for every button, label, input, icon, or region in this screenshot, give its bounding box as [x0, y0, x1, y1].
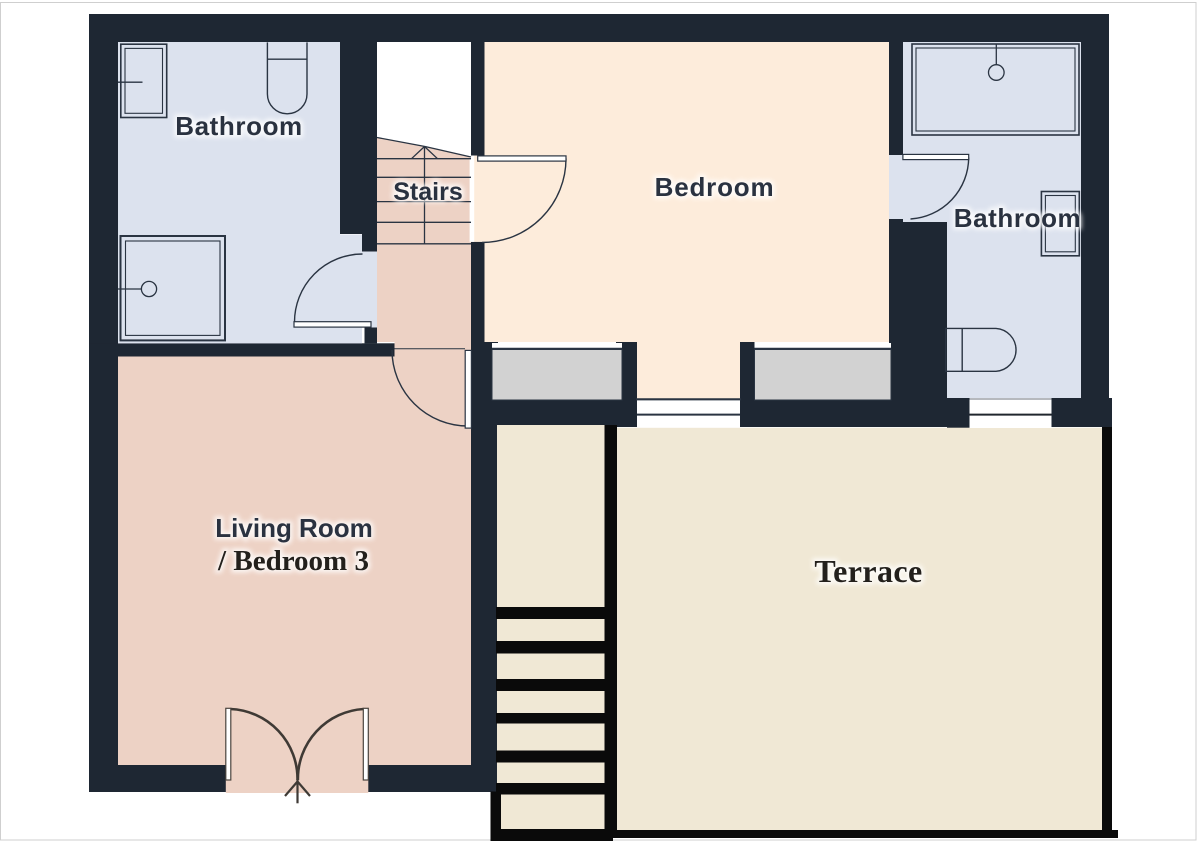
svg-text:Bathroom: Bathroom	[954, 203, 1082, 233]
svg-text:Living Room: Living Room	[215, 513, 372, 543]
svg-text:/ Bedroom 3: / Bedroom 3	[217, 545, 369, 577]
svg-text:Bedroom: Bedroom	[655, 172, 775, 202]
svg-text:Terrace: Terrace	[814, 553, 922, 589]
svg-text:Stairs: Stairs	[393, 178, 462, 206]
svg-text:Bathroom: Bathroom	[175, 111, 303, 141]
